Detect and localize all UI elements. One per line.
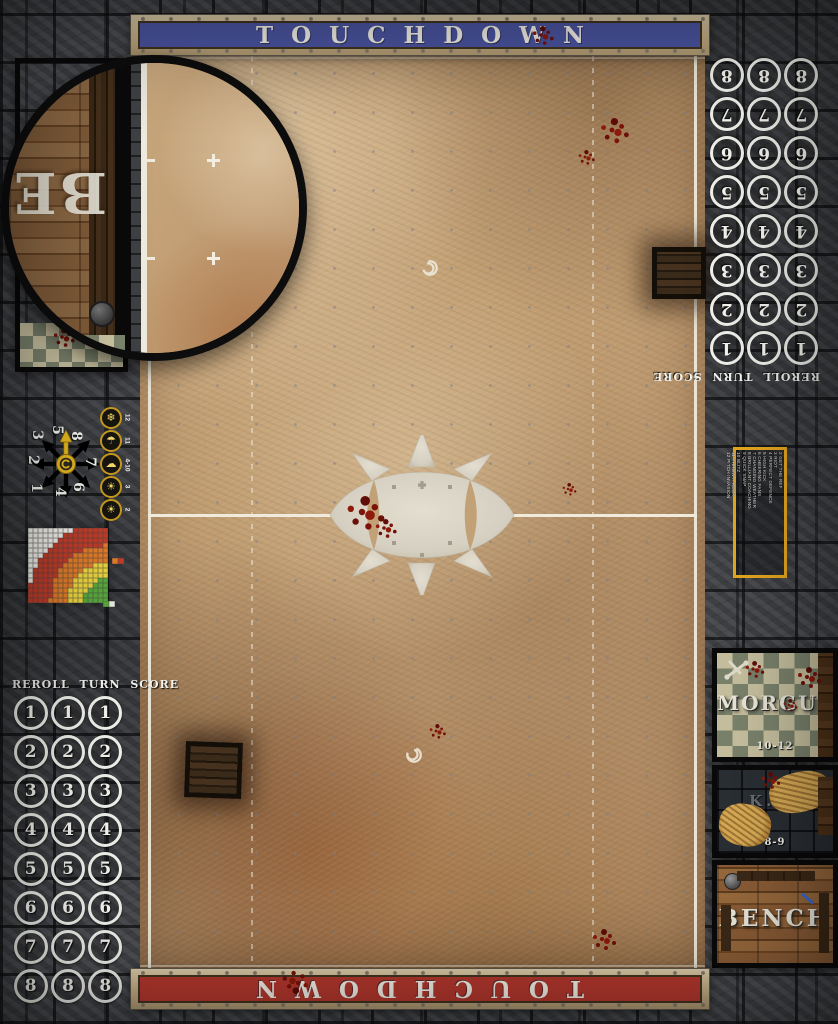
turn-track-cell: 7 <box>710 97 744 131</box>
kickoff-table-entry: 11 THROW A ROCK <box>731 452 736 574</box>
weather-track: ❄12☂11☁4-10☀3☀2 <box>100 406 134 521</box>
turn-track-cell: 5 <box>747 175 781 209</box>
scatter-number: 6 <box>70 482 86 492</box>
pen-item <box>801 893 814 905</box>
blood-splatter <box>805 675 809 679</box>
touchdown-banner-bottom-inner: TOUCHDOWN <box>138 975 702 1003</box>
turn-track-cell: 4 <box>710 214 744 248</box>
scatter-number: 3 <box>29 430 45 440</box>
weather-row: ☂11 <box>100 429 134 452</box>
turn-track-cell: 5 <box>710 175 744 209</box>
magnified-dugout-frame <box>115 63 131 353</box>
blood-splatter <box>788 704 790 706</box>
blood-splatter <box>584 156 587 159</box>
turn-track-cell: 7 <box>784 97 818 131</box>
turn-track-cell: 2 <box>88 735 122 769</box>
touchdown-banner-bottom: TOUCHDOWN <box>130 968 710 1010</box>
bench-plank <box>737 871 815 881</box>
turn-track-cell: 7 <box>747 97 781 131</box>
morgue-range: 10-12 <box>717 741 833 752</box>
turn-track-cell: 3 <box>784 253 818 287</box>
scatter-number: 8 <box>68 431 84 441</box>
turn-track-cell: 6 <box>710 136 744 170</box>
dugout-knob <box>89 301 115 327</box>
bottom-endline <box>140 965 705 967</box>
turn-track-cell: 5 <box>51 852 85 886</box>
turn-track-cell: 6 <box>88 891 122 925</box>
range-ruler-legend <box>112 558 124 564</box>
weather-roll-label: 2 <box>124 505 131 515</box>
turn-track-cell: 7 <box>14 930 48 964</box>
scatter-number: 1 <box>28 483 44 493</box>
grid-cross-mark <box>207 252 220 265</box>
blood-splatter <box>600 937 604 941</box>
blood-splatter <box>610 128 615 133</box>
kickoff-table-entry: 10 BLITZ <box>736 452 741 574</box>
scatter-number: 7 <box>82 457 98 467</box>
magnified-stone-strip <box>131 63 141 353</box>
scatter-number: 5 <box>49 425 65 435</box>
turn-track-cell: 6 <box>51 891 85 925</box>
kickoff-table-entries: 2 GET THE REF3 RIOT4 PERFECT DEFENCE5 HI… <box>737 452 783 574</box>
weather-roll-label: 11 <box>124 436 131 446</box>
blizzard-icon: ❄ <box>100 407 122 429</box>
turn-track-cell: 1 <box>51 696 85 730</box>
turn-track-cell: 1 <box>784 331 818 365</box>
turn-track-cell: 6 <box>14 891 48 925</box>
morgue-label: MORGUE <box>717 691 833 715</box>
kickoff-table-entry: 6 CHEERING FANS <box>757 452 762 574</box>
turn-track-cell: 2 <box>747 292 781 326</box>
bench-plank <box>721 905 731 951</box>
trapdoor-crate <box>184 741 243 799</box>
right-sideline <box>694 56 697 968</box>
blood-splatter <box>767 778 770 781</box>
turn-track-header: REROLL TURN SCORE <box>708 370 820 383</box>
magnified-field <box>147 63 307 353</box>
pouring-rain-icon: ☂ <box>100 430 122 452</box>
turn-track-cell: 6 <box>784 136 818 170</box>
weather-row: ❄12 <box>100 406 134 429</box>
turn-track-cell: 7 <box>88 930 122 964</box>
turn-track-cell: 1 <box>88 696 122 730</box>
turn-track-grid: 111222333444555666777888 <box>708 58 820 365</box>
touchdown-banner-top: TOUCHDOWN <box>130 14 710 56</box>
turn-track-cell: 8 <box>710 58 744 92</box>
range-ruler-legend-chip <box>109 601 115 607</box>
blood-splatter <box>751 667 754 670</box>
weather-roll-label: 4-10 <box>124 459 131 469</box>
range-ruler-legend <box>103 601 115 607</box>
turn-track-cell: 8 <box>51 969 85 1003</box>
turn-track-cell: 3 <box>51 774 85 808</box>
turn-track-cell: 8 <box>747 58 781 92</box>
turn-track-cell: 4 <box>747 214 781 248</box>
turn-track-cell: 3 <box>14 774 48 808</box>
grid-cross-mark <box>207 154 220 167</box>
kickoff-table-entry: 8 BRILLIANT COACHING <box>747 452 752 574</box>
top-endline <box>140 57 705 59</box>
range-ruler-legend-chip <box>118 558 124 564</box>
sweltering-heat-icon: ☀ <box>100 499 122 521</box>
scatter-number: 2 <box>25 455 41 465</box>
turn-track-cell: 2 <box>51 735 85 769</box>
turn-track-cell: 5 <box>14 852 48 886</box>
turn-track-right: REROLL TURN SCORE 1112223334445556667778… <box>708 58 820 383</box>
trapdoor-crate <box>652 247 706 299</box>
scatter-number: 4 <box>52 487 68 497</box>
turn-track-left: REROLL TURN SCORE 1112223334445556667778… <box>12 678 124 1003</box>
wood-plank-strip <box>818 777 833 835</box>
blood-splatter <box>296 981 300 985</box>
touchdown-label-top: TOUCHDOWN <box>238 22 602 49</box>
rune-glyph-icon <box>419 257 441 279</box>
morgue-box: MORGUE 10-12 <box>712 648 838 762</box>
perfect-weather-icon: ☁ <box>100 453 122 475</box>
kickoff-table-entry: 12 PITCH INVASION <box>726 452 731 574</box>
turn-track-grid: 111222333444555666777888 <box>12 696 124 1003</box>
magnified-bench-letters: BE <box>11 159 107 225</box>
turn-track-cell: 5 <box>88 852 122 886</box>
kickoff-table-box: 2 GET THE REF3 RIOT4 PERFECT DEFENCE5 HI… <box>733 447 787 578</box>
kickoff-table-entry: 4 PERFECT DEFENCE <box>767 452 772 574</box>
weather-row: ☁4-10 <box>100 452 134 475</box>
turn-track-cell: 3 <box>88 774 122 808</box>
turn-track-cell: 4 <box>784 214 818 248</box>
game-mat: TOUCHDOWN TOUCHDOWN BE REROLL TURN SC <box>0 0 838 1024</box>
scatter-template: 35827146 <box>28 426 104 502</box>
ko-box: K.O. 8-9 <box>712 765 838 858</box>
bench-label: BENCH <box>717 905 833 932</box>
weather-roll-label: 3 <box>124 482 131 492</box>
turn-track-cell: 3 <box>710 253 744 287</box>
blood-splatter <box>435 730 438 733</box>
turn-track-cell: 1 <box>747 331 781 365</box>
turn-track-cell: 8 <box>14 969 48 1003</box>
turn-track-cell: 2 <box>14 735 48 769</box>
kickoff-table-entry: 5 HIGH KICK <box>762 452 767 574</box>
turn-track-cell: 2 <box>784 292 818 326</box>
scatter-numbers: 35827146 <box>28 426 104 502</box>
right-widezone-line <box>592 56 594 968</box>
weather-row: ☀2 <box>100 498 134 521</box>
sideline-tick <box>143 257 155 260</box>
weather-roll-label: 12 <box>124 413 131 423</box>
kickoff-table-entry: 9 QUICK SNAP <box>741 452 746 574</box>
blood-splatter <box>539 33 543 37</box>
blood-splatter <box>359 509 365 515</box>
wood-plank-strip <box>818 653 833 757</box>
turn-track-cell: 1 <box>710 331 744 365</box>
magnifier-lens: BE <box>1 55 307 361</box>
bench-plank <box>819 893 829 953</box>
turn-track-cell: 7 <box>51 930 85 964</box>
sideline-tick <box>143 159 155 162</box>
turn-track-cell: 2 <box>710 292 744 326</box>
turn-track-cell: 4 <box>88 813 122 847</box>
weather-row: ☀3 <box>100 475 134 498</box>
range-ruler-grid <box>28 528 108 603</box>
turn-track-cell: 8 <box>784 58 818 92</box>
turn-track-cell: 1 <box>14 696 48 730</box>
turn-track-cell: 4 <box>51 813 85 847</box>
turn-track-cell: 5 <box>784 175 818 209</box>
center-spiked-emblem-icon <box>322 435 522 595</box>
turn-track-cell: 4 <box>14 813 48 847</box>
bench-box: BENCH <box>712 860 838 968</box>
turn-track-cell: 3 <box>747 253 781 287</box>
turn-track-cell: 6 <box>747 136 781 170</box>
touchdown-banner-top-inner: TOUCHDOWN <box>138 21 702 49</box>
rune-glyph-icon <box>402 743 425 766</box>
blood-splatter <box>567 488 569 490</box>
very-sunny-icon: ☀ <box>100 476 122 498</box>
kickoff-table-entry: 2 GET THE REF <box>778 452 783 574</box>
turn-track-header: REROLL TURN SCORE <box>12 678 124 691</box>
kickoff-table-entry: 7 CHANGING WEATHER <box>752 452 757 574</box>
turn-track-cell: 8 <box>88 969 122 1003</box>
blood-splatter <box>382 526 386 530</box>
touchdown-label-bottom: TOUCHDOWN <box>238 976 602 1003</box>
